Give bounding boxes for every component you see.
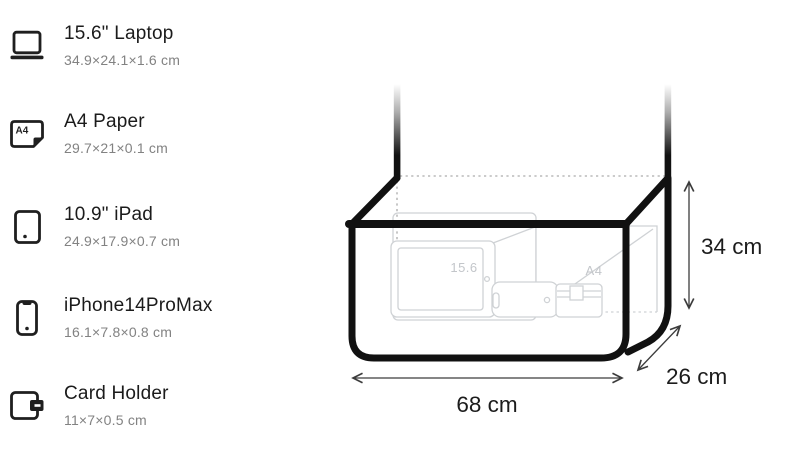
ghost-card-holder — [556, 284, 602, 317]
width-dimension-label: 68 cm — [456, 392, 517, 417]
ghost-laptop-label: 15.6 — [450, 260, 477, 275]
height-dimension-label: 34 cm — [701, 234, 762, 259]
ghost-iphone — [492, 282, 558, 317]
bag-dimension-diagram: 15.6 A4 34 cm 68 cm 26 cm — [0, 0, 800, 455]
depth-dimension-label: 26 cm — [666, 364, 727, 389]
ghost-items-inside-bag: 15.6 A4 — [391, 213, 657, 320]
ghost-ipad — [391, 241, 495, 317]
bag-straps — [394, 84, 671, 179]
ghost-a4-label: A4 — [586, 263, 603, 278]
